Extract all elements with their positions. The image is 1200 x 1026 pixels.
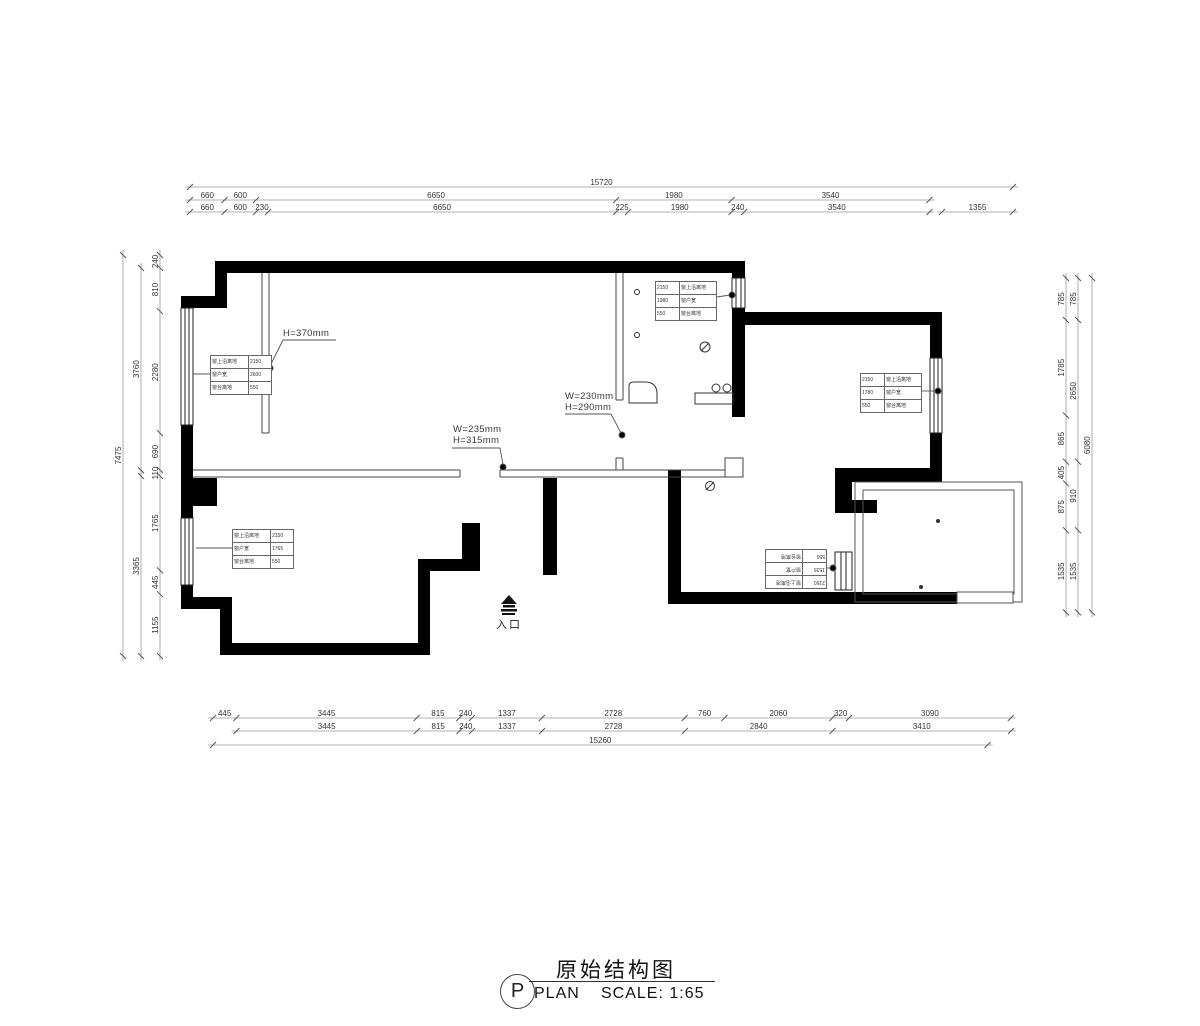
dim-label: 445 (151, 575, 160, 589)
floor-drain-icon (706, 482, 715, 491)
entrance-icon (501, 595, 517, 615)
beam-height-annotation: H=370mm (283, 328, 329, 339)
wall (930, 312, 942, 358)
window-right-room (930, 358, 942, 433)
dim-label: 6080 (1083, 436, 1092, 454)
wall (181, 466, 193, 518)
wall (835, 468, 942, 482)
wall (835, 482, 852, 513)
dim-label: 810 (151, 282, 160, 296)
wall (418, 559, 430, 655)
title-underline (529, 981, 715, 982)
dim-label: 815 (431, 709, 445, 718)
dim-label: 3410 (913, 722, 931, 731)
dim-label: 2728 (604, 709, 622, 718)
table-row: 窗户宽2600 (211, 368, 271, 381)
door-frame (725, 458, 743, 477)
table-row: 2150窗上沿离地 (656, 282, 716, 294)
wall (852, 500, 877, 513)
scale-label: SCALE: 1:65 (601, 985, 705, 1003)
window-spec-table-left-upper: 窗上沿离地2150 窗户宽2600 窗台离地550 (210, 355, 272, 395)
dim-label: 1155 (151, 616, 160, 634)
leader-dot (729, 292, 735, 298)
pipe-icon (635, 290, 640, 295)
dim-label: 15720 (590, 178, 613, 187)
vanity-shelf (695, 393, 733, 404)
dim-label: 110 (151, 466, 160, 479)
dim-label: 2650 (1069, 381, 1078, 399)
dim-label: 875 (1057, 500, 1066, 514)
point-mark (937, 520, 940, 523)
window-spec-table-left-lower: 窗上沿离地2150 窗户宽1765 窗台离地550 (232, 529, 294, 569)
dim-label: 15260 (589, 736, 612, 745)
dim-label: 240 (731, 203, 745, 212)
table-row: 2150窗上沿离地 (766, 576, 826, 588)
window-left-lower (181, 518, 193, 585)
table-row: 窗上沿离地2150 (233, 530, 293, 542)
leader-dot (830, 565, 836, 571)
window-spec-table-top-middle: 2150窗上沿离地 1980窗户宽 550窗台离地 (655, 281, 717, 321)
basin (712, 384, 720, 392)
window-bottom-right (835, 552, 852, 590)
dim-label: 785 (1057, 292, 1066, 306)
table-row: 窗台离地550 (233, 555, 293, 568)
dim-label: 445 (218, 709, 232, 718)
dim-label: 2728 (605, 722, 623, 731)
dim-label: 1535 (1057, 562, 1066, 580)
dim-label: 6650 (433, 203, 451, 212)
dim-label: 230 (255, 203, 269, 212)
dim-label: 660 (201, 203, 215, 212)
dim-label: 2060 (769, 709, 787, 718)
floor-plan-drawing: 1572066060066501980354066060023066502251… (0, 0, 1200, 1026)
floor-drain-icon (700, 342, 710, 352)
leader-dot (935, 388, 941, 394)
dim-label: 1785 (1057, 358, 1066, 376)
wall-center (543, 478, 557, 575)
dim-label: 3365 (132, 557, 141, 575)
pipe-icon (635, 333, 640, 338)
dim-label: 225 (615, 203, 629, 212)
leader-dot (500, 464, 506, 470)
entrance-label: 入口 (496, 616, 522, 632)
dim-label: 2280 (151, 363, 160, 381)
table-row: 1980窗户宽 (656, 294, 716, 307)
dim-label: 600 (234, 191, 248, 200)
dim-label: 3760 (132, 360, 141, 378)
balcony (855, 482, 1022, 603)
window-spec-table-right-room: 2150窗上沿离地 1780窗户宽 550窗台离地 (860, 373, 922, 413)
dim-label: 405 (1057, 465, 1066, 479)
dim-label: 600 (234, 203, 248, 212)
dim-label: 6650 (427, 191, 445, 200)
dim-label: 240 (151, 254, 160, 268)
wall-bottom-left (220, 643, 430, 655)
table-row: 2150窗上沿离地 (861, 374, 921, 386)
walls (181, 261, 957, 655)
dim-label: 865 (1057, 431, 1066, 445)
dim-label: 3445 (318, 722, 336, 731)
dim-label: 1337 (498, 709, 516, 718)
drawing-title: 原始结构图 (556, 954, 676, 984)
table-row: 550窗台离地 (656, 307, 716, 320)
opening2-annotation: W=230mm H=290mm (565, 391, 613, 413)
table-row: 窗台离地550 (211, 381, 271, 394)
dim-label: 3445 (318, 709, 336, 718)
dim-label: 1355 (969, 203, 987, 212)
leader-dot (619, 432, 625, 438)
wall-top-main (215, 261, 744, 273)
dim-label: 3540 (828, 203, 846, 212)
wall (181, 597, 232, 609)
dim-label: 3090 (921, 709, 939, 718)
dim-label: 1980 (665, 191, 683, 200)
table-row: 窗户宽1765 (233, 542, 293, 555)
table-row: 550窗台离地 (766, 550, 826, 563)
dim-label: 1337 (498, 722, 516, 731)
plan-symbol-circle: P (500, 974, 535, 1009)
dim-label: 815 (431, 722, 445, 731)
table-row: 1535窗户宽 (766, 563, 826, 576)
opening1-annotation: W=235mm H=315mm (453, 424, 501, 446)
dim-label: 1535 (1069, 562, 1078, 580)
dim-label: 3540 (822, 191, 840, 200)
floor-plan-sheet: 1572066060066501980354066060023066502251… (0, 0, 1200, 1026)
dim-label: 240 (459, 722, 473, 731)
table-row: 1780窗户宽 (861, 386, 921, 399)
wall-topright-room (732, 312, 942, 325)
dim-label: 240 (459, 709, 473, 718)
wall (462, 523, 480, 571)
point-mark (920, 586, 923, 589)
wall (193, 478, 217, 506)
bath-door-swing (629, 382, 657, 403)
table-row: 550窗台离地 (861, 399, 921, 412)
plan-symbol-letter: P (511, 980, 524, 1002)
wall (732, 261, 745, 278)
dim-label: 7475 (114, 446, 123, 464)
dim-label: 910 (1069, 489, 1078, 503)
basin (723, 384, 731, 392)
wall (181, 296, 227, 308)
dim-label: 2840 (750, 722, 768, 731)
table-row: 窗上沿离地2150 (211, 356, 271, 368)
dim-label: 760 (698, 709, 712, 718)
dim-label: 1765 (151, 514, 160, 532)
plan-label: PLAN (534, 985, 580, 1003)
dim-label: 785 (1069, 292, 1078, 306)
dim-label: 690 (151, 444, 160, 458)
window-left-upper (181, 308, 193, 425)
dim-label: 660 (201, 191, 215, 200)
dim-label: 320 (834, 709, 848, 718)
dim-label: 1980 (671, 203, 689, 212)
wall (668, 470, 681, 604)
window-spec-table-bottom-right: 2150窗上沿离地 1535窗户宽 550窗台离地 (765, 549, 827, 589)
